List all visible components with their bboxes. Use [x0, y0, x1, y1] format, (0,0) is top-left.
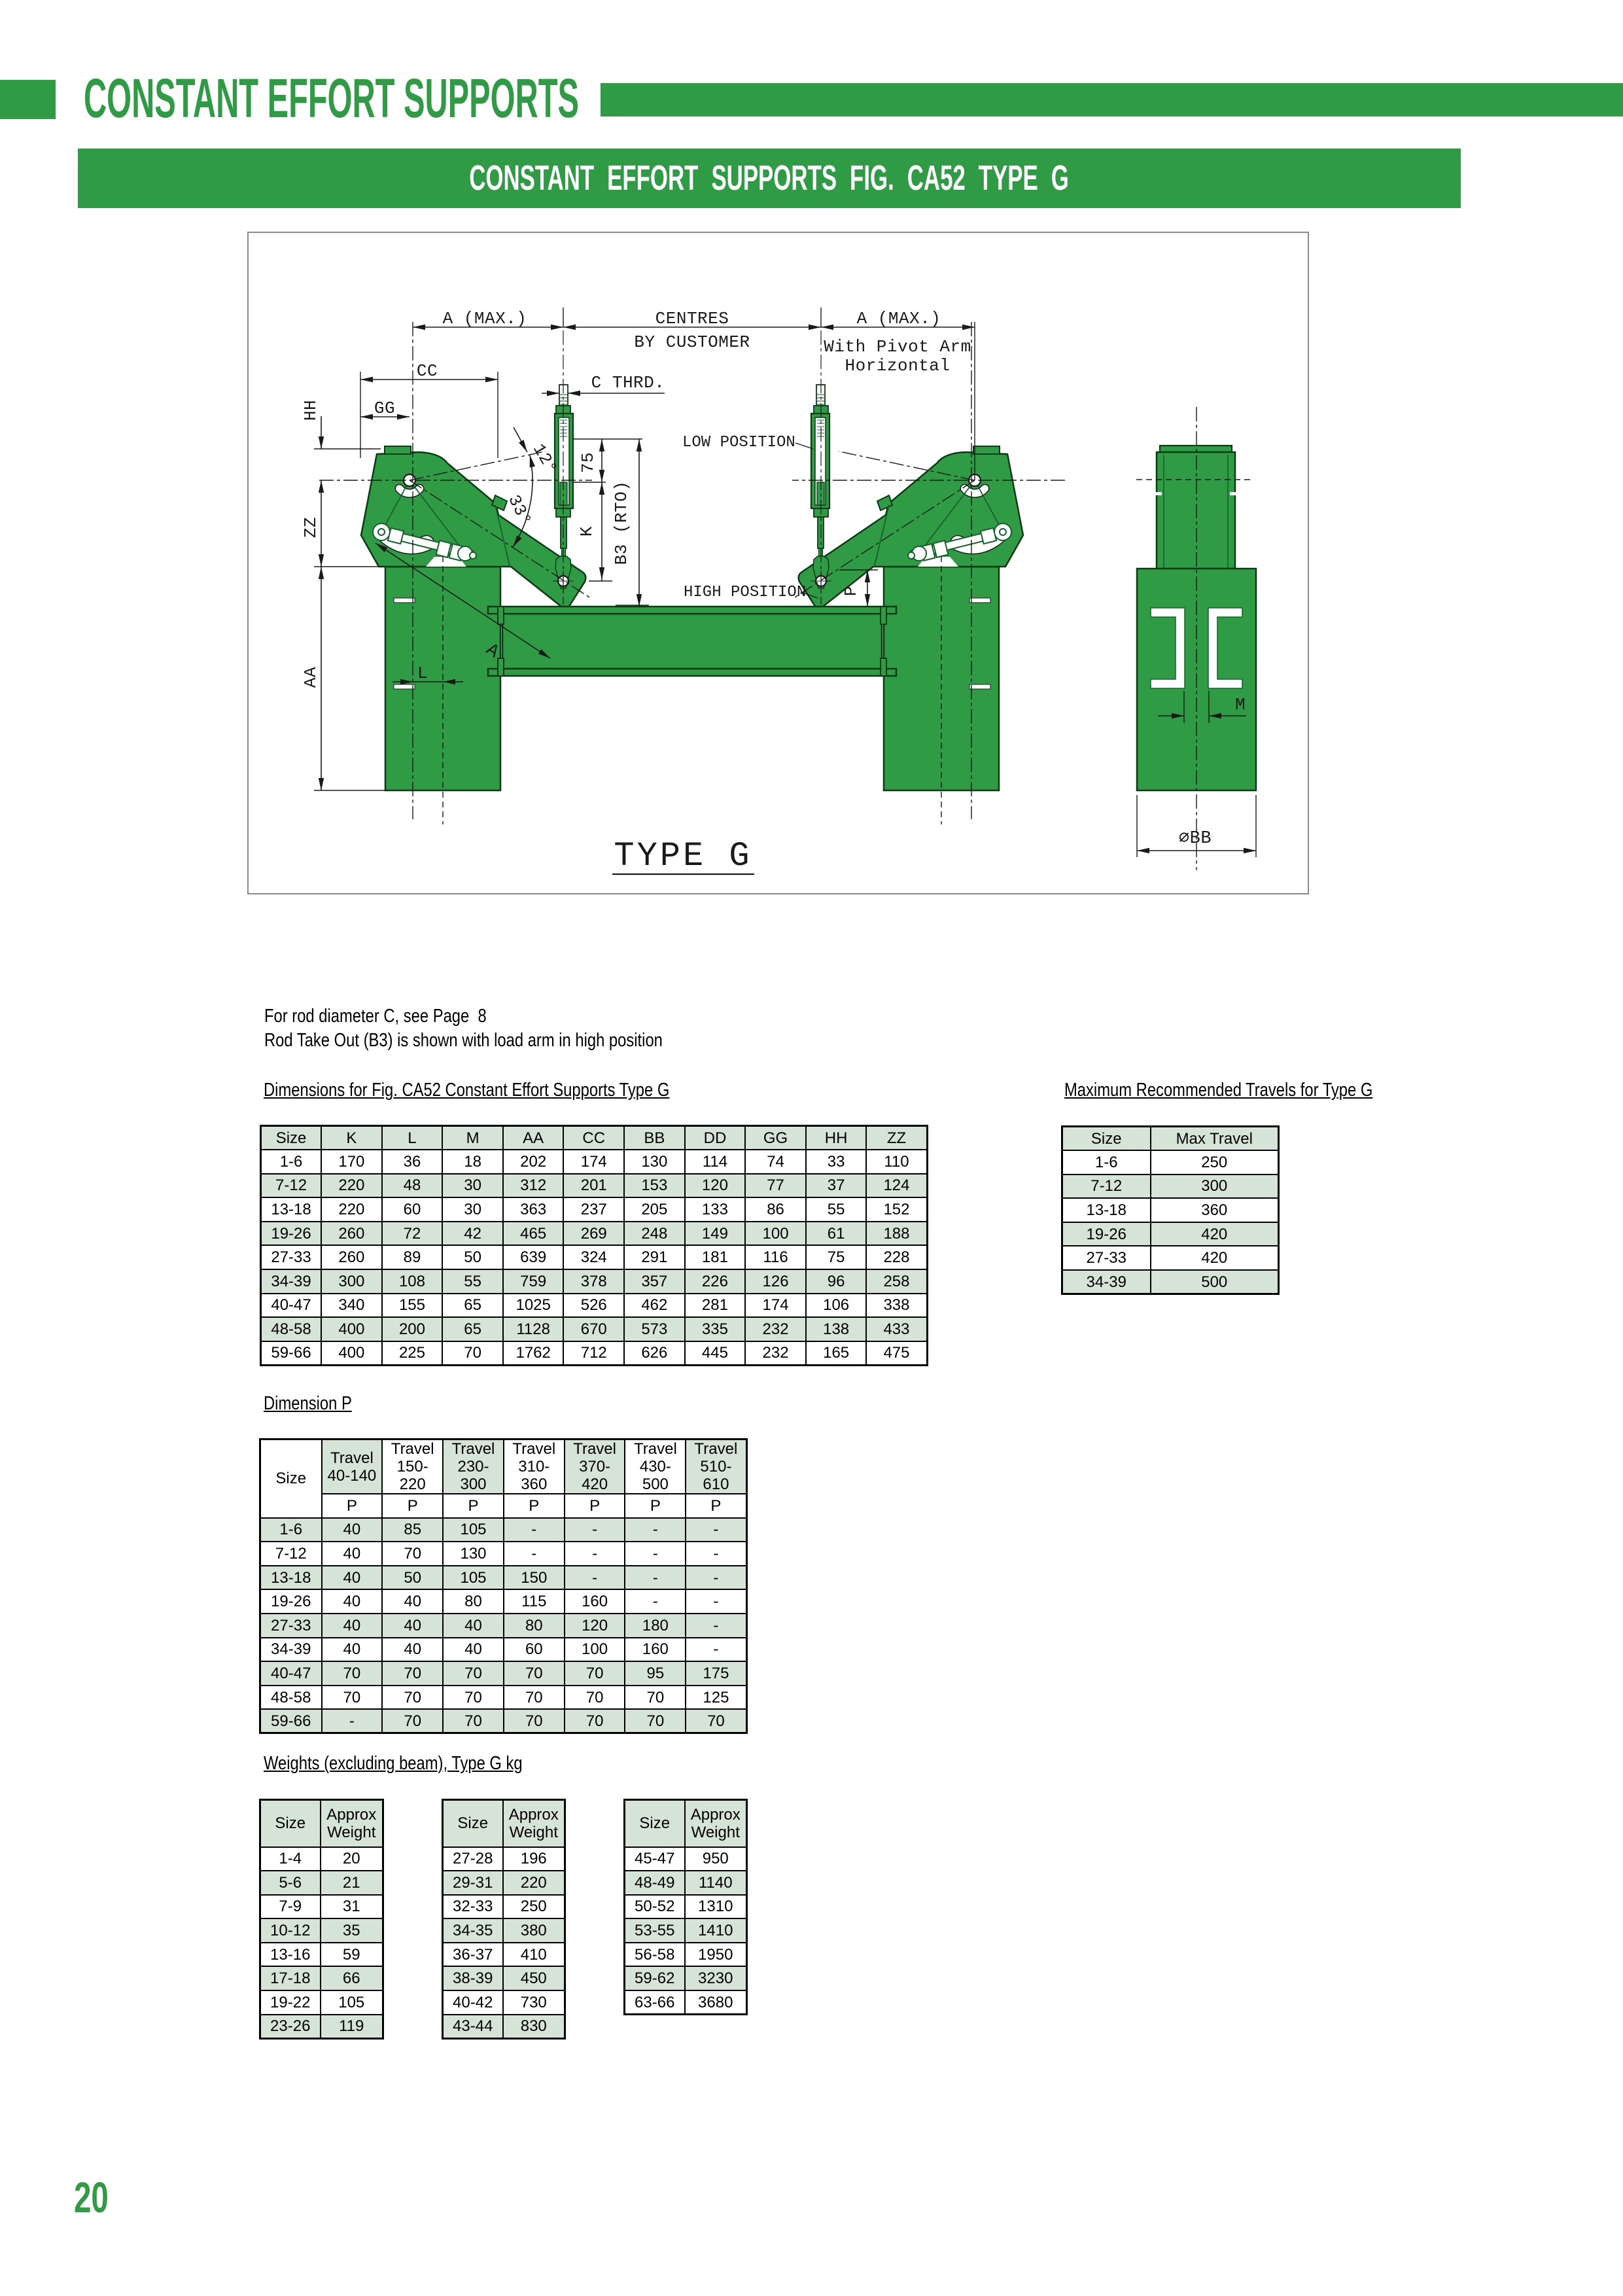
svg-text:With Pivot Arm: With Pivot Arm [824, 337, 971, 357]
svg-text:HH: HH [301, 400, 321, 421]
svg-text:B3 (RTO): B3 (RTO) [612, 481, 631, 565]
svg-text:C THRD.: C THRD. [591, 373, 665, 393]
svg-text:CC: CC [417, 361, 438, 381]
svg-text:Horizontal: Horizontal [845, 356, 950, 376]
svg-text:M: M [1235, 695, 1246, 715]
svg-text:HIGH POSITION: HIGH POSITION [684, 584, 806, 601]
svg-text:P: P [841, 586, 861, 596]
svg-text:AA: AA [301, 667, 321, 688]
svg-text:K: K [577, 526, 597, 537]
svg-text:CENTRES: CENTRES [655, 309, 729, 328]
svg-text:BY CUSTOMER: BY CUSTOMER [634, 332, 750, 352]
svg-text:GG: GG [374, 398, 395, 418]
svg-text:∅BB: ∅BB [1179, 829, 1212, 849]
svg-text:LOW POSITION: LOW POSITION [682, 434, 795, 451]
svg-text:TYPE G: TYPE G [614, 837, 752, 875]
svg-text:A (MAX.): A (MAX.) [443, 309, 527, 328]
svg-text:A (MAX.): A (MAX.) [857, 309, 941, 328]
svg-text:L: L [417, 663, 428, 683]
svg-text:ZZ: ZZ [301, 517, 321, 538]
svg-text:75: 75 [578, 452, 598, 473]
